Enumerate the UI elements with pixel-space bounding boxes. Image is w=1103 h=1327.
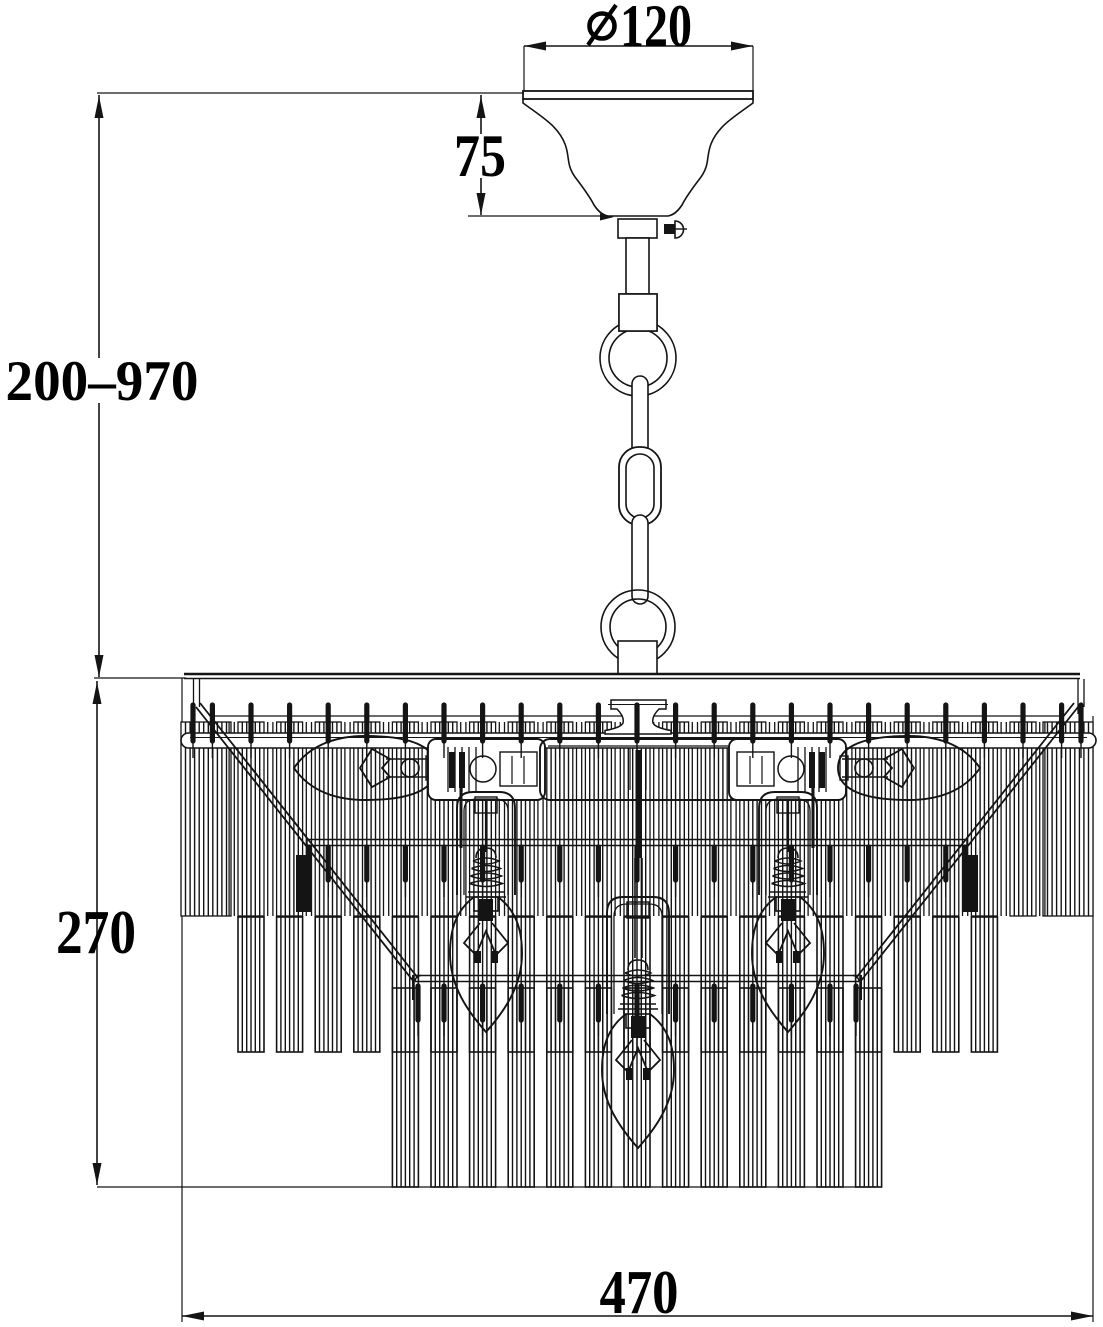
svg-text:75: 75: [454, 123, 506, 189]
svg-text:470: 470: [600, 1259, 679, 1327]
svg-text:270: 270: [56, 899, 136, 967]
svg-text:120: 120: [620, 0, 692, 59]
svg-text:200–970: 200–970: [6, 350, 199, 413]
